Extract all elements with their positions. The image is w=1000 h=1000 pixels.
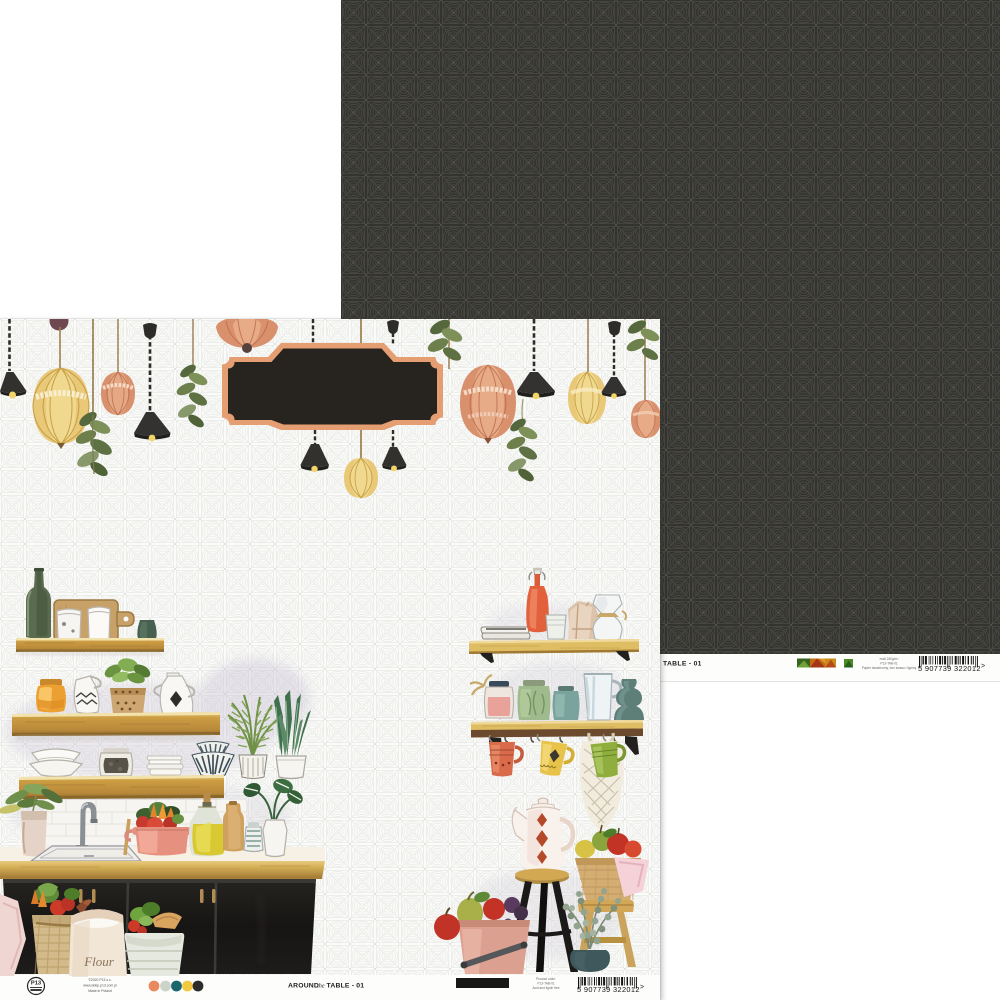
svg-text:Flour: Flour <box>83 954 115 969</box>
svg-text:TABLE - 01: TABLE - 01 <box>663 661 702 668</box>
svg-text:www.sklep.p13.com.pl: www.sklep.p13.com.pl <box>83 984 117 988</box>
svg-text:5 907739 322012: 5 907739 322012 <box>918 664 981 673</box>
svg-text:TABLE - 01: TABLE - 01 <box>327 983 365 990</box>
svg-text:AROUND: AROUND <box>288 983 319 990</box>
svg-text:P13-TAB-01: P13-TAB-01 <box>537 982 555 986</box>
svg-text:P13-TAB-01: P13-TAB-01 <box>880 662 898 666</box>
svg-text:the: the <box>317 983 325 990</box>
svg-text:Product code:: Product code: <box>536 977 556 981</box>
svg-text:>: > <box>981 663 985 670</box>
svg-text:Acid and lignin free: Acid and lignin free <box>532 986 559 990</box>
svg-text:5 907739 322012: 5 907739 322012 <box>577 985 640 994</box>
svg-text:Papier dwustronny, bez kwasu i: Papier dwustronny, bez kwasu i ligniny <box>862 666 917 670</box>
svg-text:Made in Poland: Made in Poland <box>88 989 112 993</box>
svg-text:>: > <box>640 984 644 991</box>
svg-text:©2020 P13 s.c.: ©2020 P13 s.c. <box>88 978 111 982</box>
svg-text:matt 240g/m²: matt 240g/m² <box>880 657 899 661</box>
svg-text:P13: P13 <box>31 981 42 987</box>
